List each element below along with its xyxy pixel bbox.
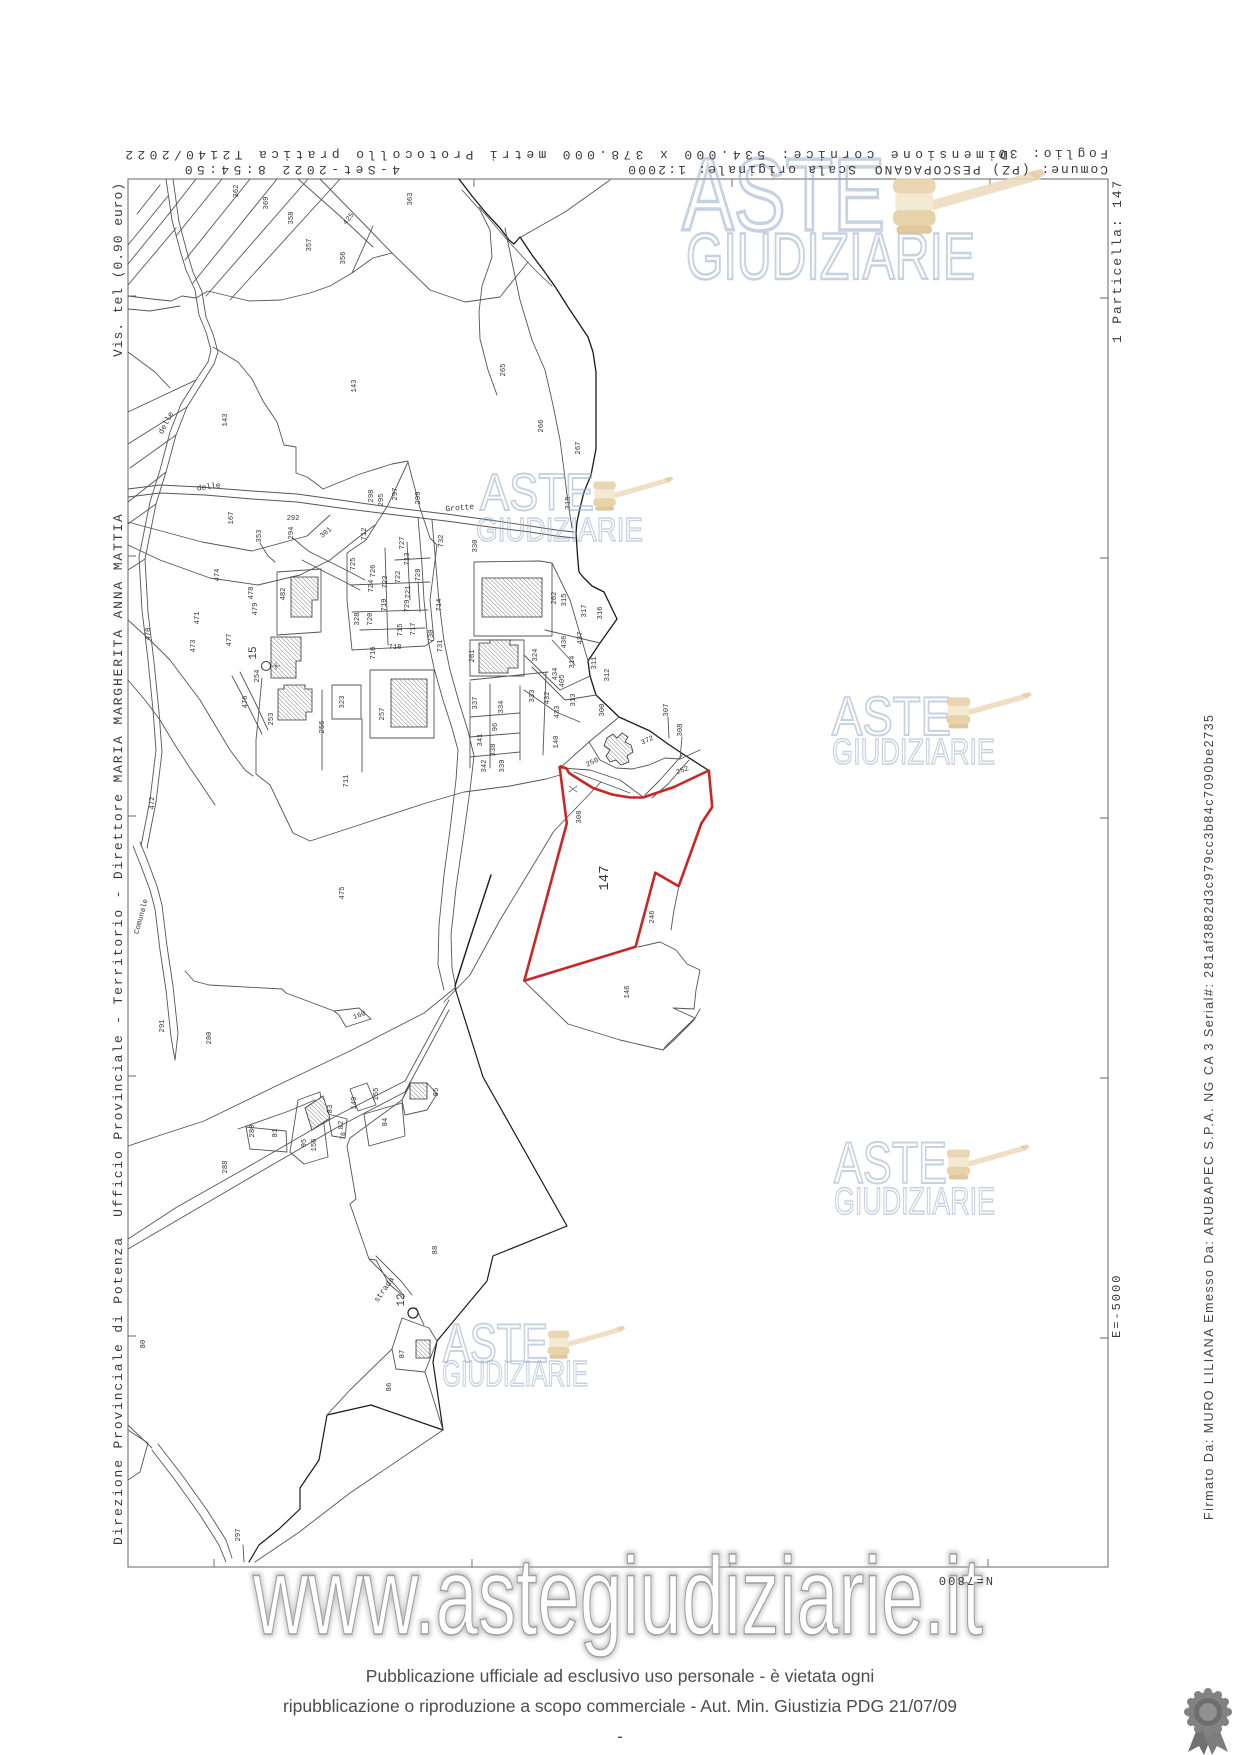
svg-text:GIUDIZIARIE: GIUDIZIARIE: [442, 1353, 588, 1394]
svg-text:GIUDIZIARIE: GIUDIZIARIE: [834, 1181, 995, 1223]
svg-text:www.astegiudiziarie.it: www.astegiudiziarie.it: [252, 1535, 983, 1658]
svg-text:GIUDIZIARIE: GIUDIZIARIE: [476, 511, 643, 548]
svg-text:GIUDIZIARIE: GIUDIZIARIE: [832, 731, 995, 772]
